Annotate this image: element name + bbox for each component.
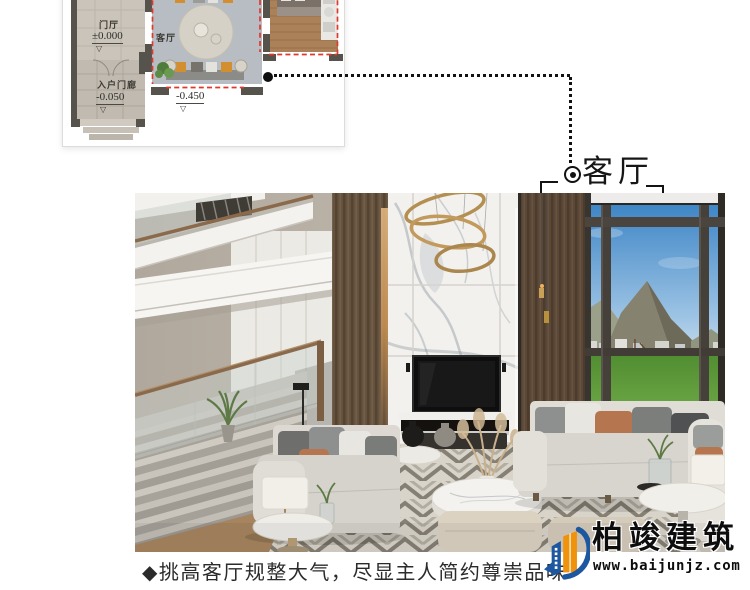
tv [406, 356, 506, 412]
plan-elevation-living: -0.450 [176, 91, 204, 104]
callout-end-ring [564, 166, 581, 183]
living-room-scene [135, 193, 725, 552]
logo-company-name: 柏竣建筑 [592, 522, 740, 553]
callout-connector-horizontal [274, 74, 570, 77]
plan-room-label-living: 客厅 [156, 34, 176, 43]
plan-elevation-entry-hall: ±0.000 [92, 31, 123, 44]
callout-connector-vertical [569, 77, 572, 163]
left-wood-panel [332, 193, 388, 445]
plan-bedroom [270, 0, 338, 52]
living-room-photo [135, 193, 725, 552]
backlit-strip-left [381, 208, 388, 443]
elevation-mark-icon: ▽ [100, 106, 106, 114]
photo-caption: ◆挑高客厅规整大气，尽显主人简约尊崇品味 [142, 556, 567, 585]
plan-room-label-porch: 入户门廊 [97, 81, 137, 90]
callout-label: 客厅 [582, 153, 654, 190]
logo-building-icon [544, 522, 590, 586]
page: 门厅 ±0.000 ▽ 客厅 入户门廊 -0.050 ▽ -0.450 ▽ 客厅 [0, 0, 750, 590]
elevation-mark-icon: ▽ [180, 105, 186, 113]
logo: 柏竣建筑 www.baijunjz.com [542, 516, 748, 588]
plan-room-label-entry-hall: 门厅 [99, 21, 119, 30]
callout-anchor-dot [263, 72, 273, 82]
elevation-mark-icon: ▽ [96, 45, 102, 53]
logo-website: www.baijunjz.com [593, 558, 741, 574]
plan-elevation-porch: -0.050 [96, 92, 124, 105]
